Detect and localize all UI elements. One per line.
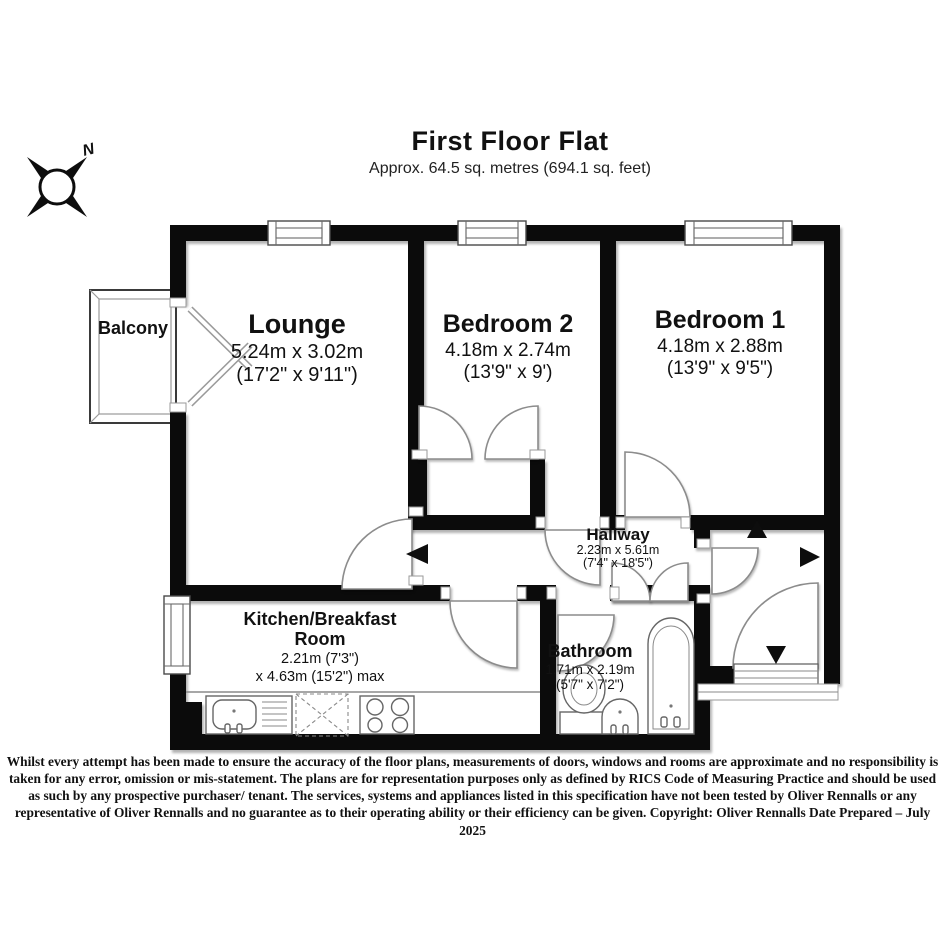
kitchen-door-swing [450,601,517,668]
hallway-metric: 2.23m x 5.61m [577,543,660,557]
bedroom1-door-swing [625,452,690,517]
compass-circle [40,170,74,204]
kitchen-hob [360,696,414,734]
bedroom2-window [458,221,526,245]
entrance-threshold [734,664,818,684]
bedroom1-imperial: (13'9" x 9'5") [667,358,773,379]
balcony-structure [90,290,176,423]
kitchen-fixtures [186,692,540,736]
compass-rose: N [27,140,97,217]
kitchen-metric: 2.21m (7'3") [281,651,359,667]
disclaimer-text: Whilst every attempt has been made to en… [5,753,940,839]
kitchen-imperial: x 4.63m (15'2") max [256,669,386,685]
bedroom1-metric: 4.18m x 2.88m [657,336,783,357]
lounge-metric: 5.24m x 3.02m [231,341,363,363]
hallway-imperial: (7'4" x 18'5") [583,556,653,570]
entrance-landing [698,684,838,700]
arrow-right-icon [800,547,820,567]
bedroom2-label: Bedroom 2 [443,310,574,338]
bathroom-metric: 1.71m x 2.19m [545,662,634,677]
bedroom1-label: Bedroom 1 [655,306,786,334]
bathtub [648,618,694,734]
basin [602,699,638,734]
compass-north-label: N [81,140,97,159]
lounge-imperial: (17'2" x 9'11") [236,364,358,386]
hallway-label: Hallway [586,525,650,544]
bathroom-imperial: (5'7" x 7'2") [556,677,624,692]
hall-cupboard-door-right [650,563,688,601]
kitchen-label-line2: Room [295,629,346,649]
kitchen-sink [206,696,292,734]
floorplan-page: First Floor Flat Approx. 64.5 sq. metres… [0,0,945,945]
bedroom2-imperial: (13'9" x 9') [464,362,553,383]
bedroom1-window [685,221,792,245]
bathroom-label: Bathroom [548,641,633,661]
lounge-door-swing [342,519,412,589]
kitchen-label-line1: Kitchen/Breakfast [243,609,396,629]
lounge-window [268,221,330,245]
kitchen-window [164,596,190,674]
bedroom2-metric: 4.18m x 2.74m [445,340,571,361]
vestibule-cupboard-door [712,548,758,594]
balcony-label: Balcony [98,318,168,338]
lounge-label: Lounge [248,309,345,339]
kitchen-appliance-space [296,694,348,736]
